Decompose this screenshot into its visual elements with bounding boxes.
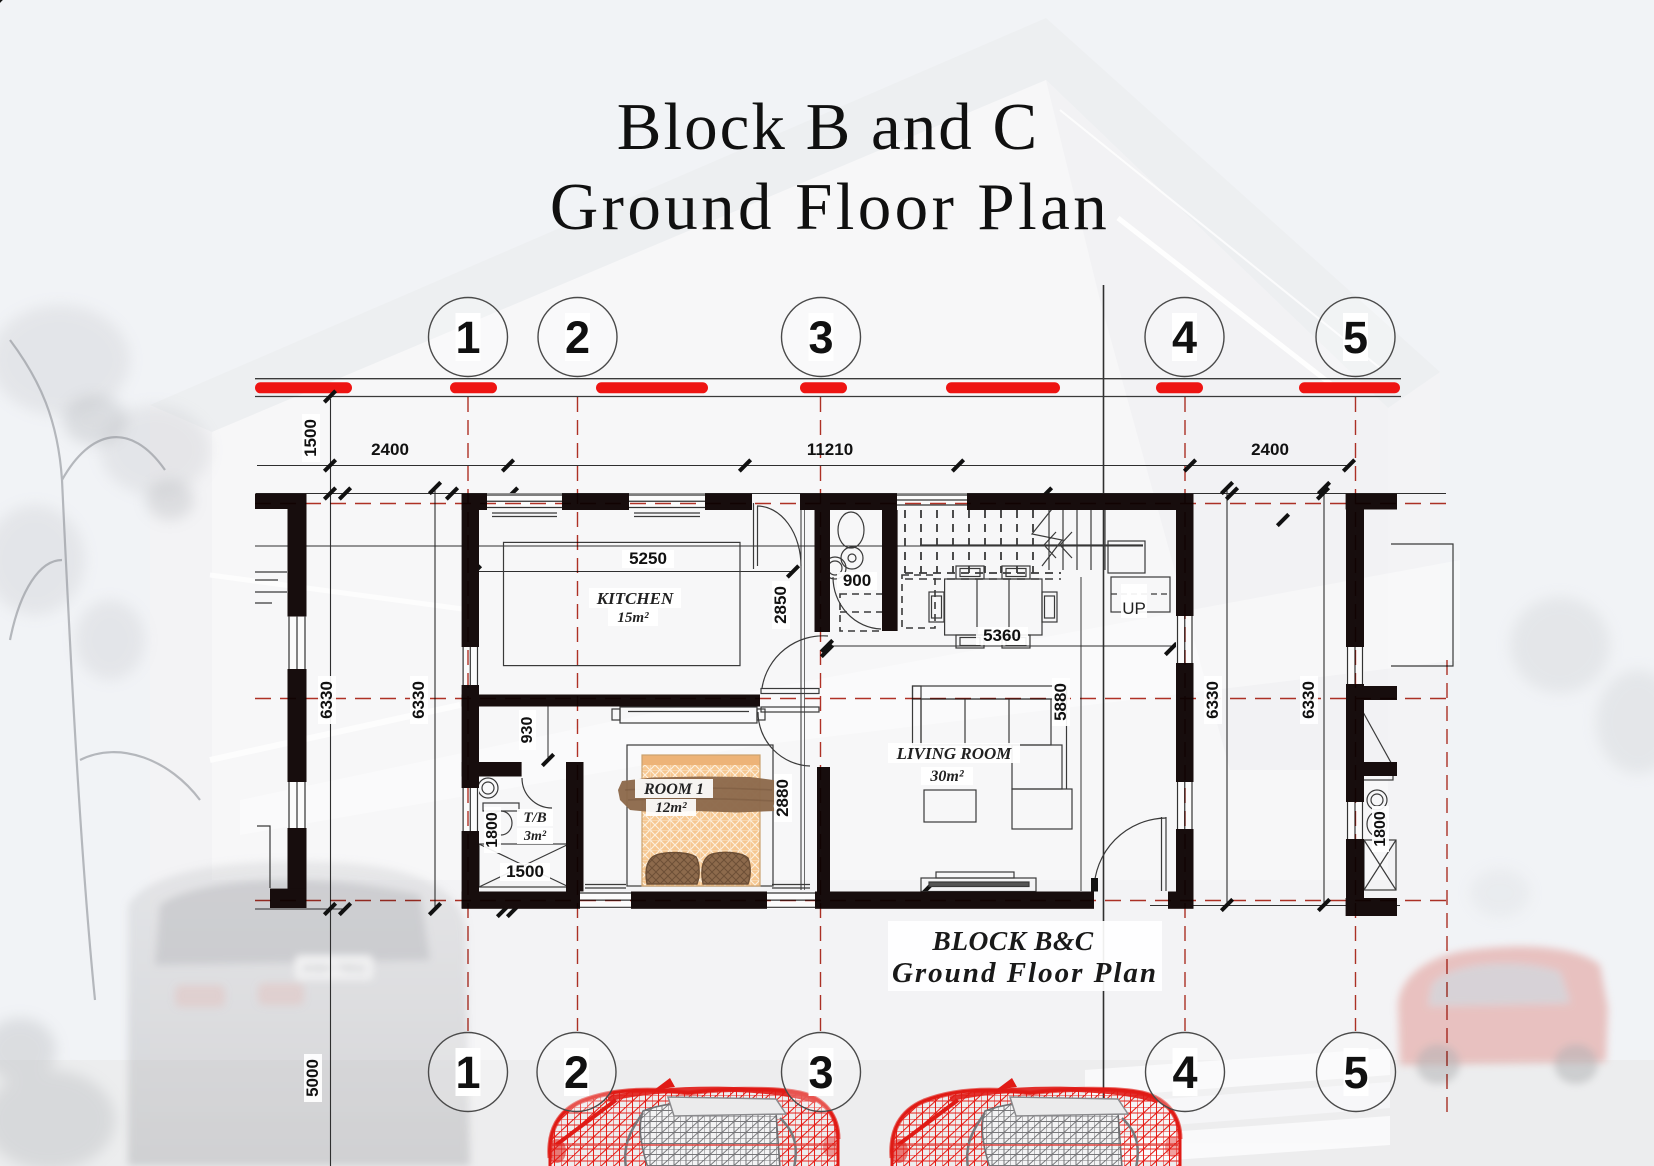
svg-text:1: 1 xyxy=(455,1047,480,1098)
svg-text:30m²: 30m² xyxy=(929,768,964,785)
svg-text:2400: 2400 xyxy=(1251,440,1289,459)
svg-text:4: 4 xyxy=(1172,312,1197,363)
svg-text:12m²: 12m² xyxy=(655,800,687,816)
svg-text:6330: 6330 xyxy=(1299,681,1318,719)
svg-text:930: 930 xyxy=(519,717,536,744)
svg-text:BLOCK B&C: BLOCK B&C xyxy=(931,925,1093,956)
svg-text:Block B and C: Block B and C xyxy=(617,90,1039,164)
svg-text:ROOM 1: ROOM 1 xyxy=(643,781,704,798)
svg-text:6330: 6330 xyxy=(1203,681,1222,719)
svg-text:1500: 1500 xyxy=(301,419,320,457)
svg-text:900: 900 xyxy=(843,571,871,590)
svg-text:11210: 11210 xyxy=(807,440,853,459)
svg-text:5880: 5880 xyxy=(1051,683,1070,721)
svg-text:5250: 5250 xyxy=(629,549,667,568)
svg-text:2: 2 xyxy=(565,312,590,363)
svg-text:1500: 1500 xyxy=(506,862,544,881)
svg-text:3: 3 xyxy=(808,312,833,363)
svg-text:2400: 2400 xyxy=(371,440,409,459)
svg-text:1800: 1800 xyxy=(484,812,501,848)
svg-text:3: 3 xyxy=(808,1047,833,1098)
svg-text:UP: UP xyxy=(1122,599,1146,618)
svg-text:2: 2 xyxy=(564,1047,589,1098)
svg-text:T/B: T/B xyxy=(523,810,546,826)
svg-text:6330: 6330 xyxy=(409,681,428,719)
svg-text:2880: 2880 xyxy=(773,779,792,817)
svg-text:Ground Floor Plan: Ground Floor Plan xyxy=(892,957,1158,989)
svg-text:3m²: 3m² xyxy=(523,829,547,844)
svg-text:5: 5 xyxy=(1343,1047,1368,1098)
svg-text:1: 1 xyxy=(455,312,480,363)
svg-text:LIVING ROOM: LIVING ROOM xyxy=(896,744,1013,763)
svg-text:5000: 5000 xyxy=(303,1059,322,1097)
svg-text:2850: 2850 xyxy=(771,586,790,624)
svg-text:6330: 6330 xyxy=(317,681,336,719)
svg-text:ANH 7852: ANH 7852 xyxy=(301,960,367,976)
svg-text:15m²: 15m² xyxy=(617,610,649,626)
svg-text:KITCHEN: KITCHEN xyxy=(596,589,674,608)
svg-text:4: 4 xyxy=(1172,1047,1197,1098)
svg-text:1800: 1800 xyxy=(1372,811,1389,847)
svg-text:Ground Floor Plan: Ground Floor Plan xyxy=(550,170,1110,244)
svg-text:5360: 5360 xyxy=(983,626,1021,645)
svg-text:5: 5 xyxy=(1343,312,1368,363)
